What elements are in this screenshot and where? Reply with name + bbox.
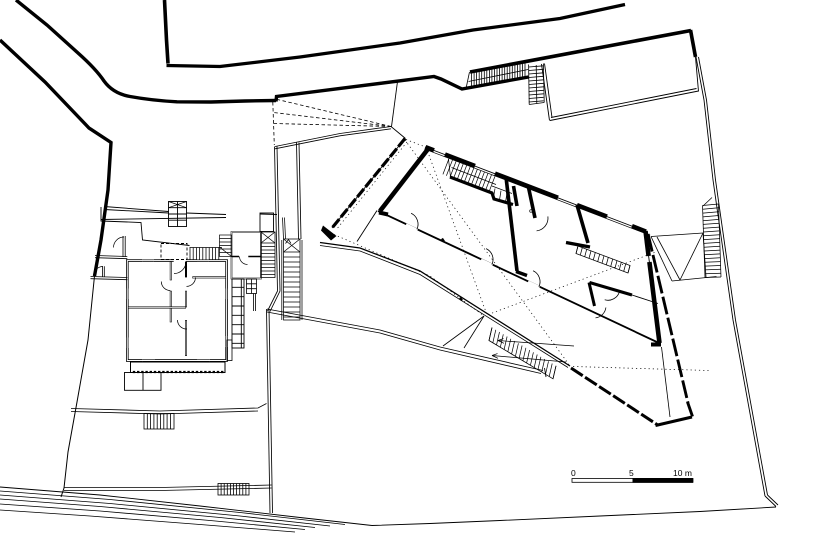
- svg-text:10 m: 10 m: [673, 468, 692, 478]
- svg-text:0: 0: [571, 468, 576, 478]
- svg-text:5: 5: [629, 468, 634, 478]
